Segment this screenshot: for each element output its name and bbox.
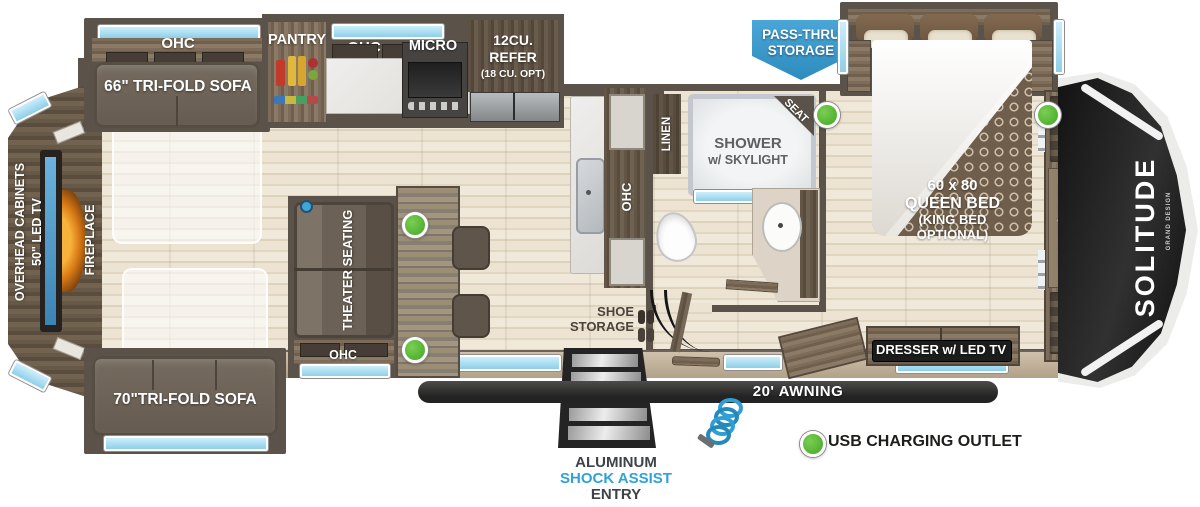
pantry-item <box>298 56 306 86</box>
sofa70-label: 70"TRI-FOLD SOFA <box>95 391 275 408</box>
sofa66-label: 66" TRI-FOLD SOFA <box>88 78 268 95</box>
tv-screen <box>45 157 56 325</box>
bed-slide-window <box>838 20 848 74</box>
exterior-gap <box>564 50 664 84</box>
theater-seating-label: THEATER SEATING <box>339 190 355 350</box>
shoes-icon <box>638 328 645 342</box>
bar-stool <box>452 226 490 270</box>
refrigerator-gap <box>513 92 515 120</box>
awning-bar <box>418 381 998 403</box>
ohc-label: OHC <box>128 36 228 53</box>
kitchen-window <box>332 24 444 39</box>
sofa-seam <box>176 96 178 126</box>
cap-window-slat <box>1038 250 1045 290</box>
shoe-storage-label-2: STORAGE <box>554 320 634 334</box>
usb-outlet-icon <box>814 102 840 128</box>
awning-label: 20' AWNING <box>718 384 878 401</box>
refrigerator <box>470 92 560 122</box>
micro-label: MICRO <box>398 39 468 55</box>
cabinet-panel <box>609 238 645 286</box>
legend-usb-label: USB CHARGING OUTLET <box>828 433 1048 451</box>
overhead-cabinets-label: OVERHEAD CABINETS <box>12 147 28 317</box>
brand-logo: SOLITUDE <box>1130 132 1160 342</box>
legend-usb-icon <box>800 431 826 457</box>
pantry-item <box>308 58 318 68</box>
usb-outlet-icon <box>402 212 428 238</box>
sink-drain <box>586 190 591 195</box>
bed-label-2: QUEEN BED <box>880 195 1025 213</box>
pantry-item <box>288 56 296 86</box>
usb-outlet-icon <box>402 337 428 363</box>
nightstand <box>847 40 871 92</box>
sofa-seam <box>152 360 154 390</box>
cabinet-panel <box>609 94 645 150</box>
shower-label-1: SHOWER <box>688 136 808 153</box>
stove-knobs <box>408 102 460 110</box>
linen-label: LINEN <box>659 104 675 164</box>
bed-label-3: (KING BED <box>880 213 1025 227</box>
step <box>569 408 647 421</box>
usb-outlet-icon <box>1035 102 1061 128</box>
area-rug <box>112 122 262 244</box>
step <box>568 426 650 440</box>
ohc-label: OHC <box>618 167 634 227</box>
bar-stool <box>452 294 490 338</box>
ohc-label: OHC <box>303 349 383 363</box>
vanity-drain <box>778 223 783 228</box>
shoes-icon <box>647 328 654 342</box>
refer-label-1: 12CU. <box>467 33 559 48</box>
brand-sub-logo: GRAND DESIGN <box>1164 176 1174 266</box>
bed-label-4: OPTIONAL) <box>880 228 1025 242</box>
cup-holder <box>300 200 313 213</box>
oven-window <box>408 62 462 98</box>
area-rug <box>122 268 268 360</box>
shoes-icon <box>647 310 654 324</box>
pantry-item <box>308 70 318 80</box>
vanity-cabinet <box>800 190 818 298</box>
pass-thru-label-1: PASS-THRU <box>752 28 850 43</box>
hall-window <box>724 355 782 370</box>
kitchen-sink <box>576 158 605 234</box>
nightstand <box>1029 40 1053 92</box>
sofa70-window <box>104 436 268 451</box>
towel-bar <box>672 356 720 367</box>
refer-label-3: (18 CU. OPT) <box>467 69 559 81</box>
sofa-seam <box>215 360 217 390</box>
step <box>572 354 638 367</box>
theater-window <box>300 364 390 378</box>
shoes-icon <box>638 310 645 324</box>
rv-floorplan: OVERHEAD CABINETS 50" LED TV FIREPLACE O… <box>0 0 1200 507</box>
refer-label-2: REFER <box>467 50 559 65</box>
fireplace-label: FIREPLACE <box>82 180 98 300</box>
entry-label-3: ENTRY <box>536 487 696 504</box>
dresser-label: DRESSER w/ LED TV <box>872 343 1010 357</box>
shoe-storage-label-1: SHOE <box>554 305 634 319</box>
pantry-item <box>274 96 318 104</box>
bed-slide-window <box>1054 20 1064 74</box>
bed-label-1: 60 x 80 <box>880 178 1025 195</box>
pantry-item <box>276 60 285 86</box>
pantry-label: PANTRY <box>262 33 332 49</box>
pass-thru-label-2: STORAGE <box>752 44 850 59</box>
shower-label-2: w/ SKYLIGHT <box>688 154 808 168</box>
led-tv-label: 50" LED TV <box>29 172 45 292</box>
cabinet-door <box>332 44 378 59</box>
